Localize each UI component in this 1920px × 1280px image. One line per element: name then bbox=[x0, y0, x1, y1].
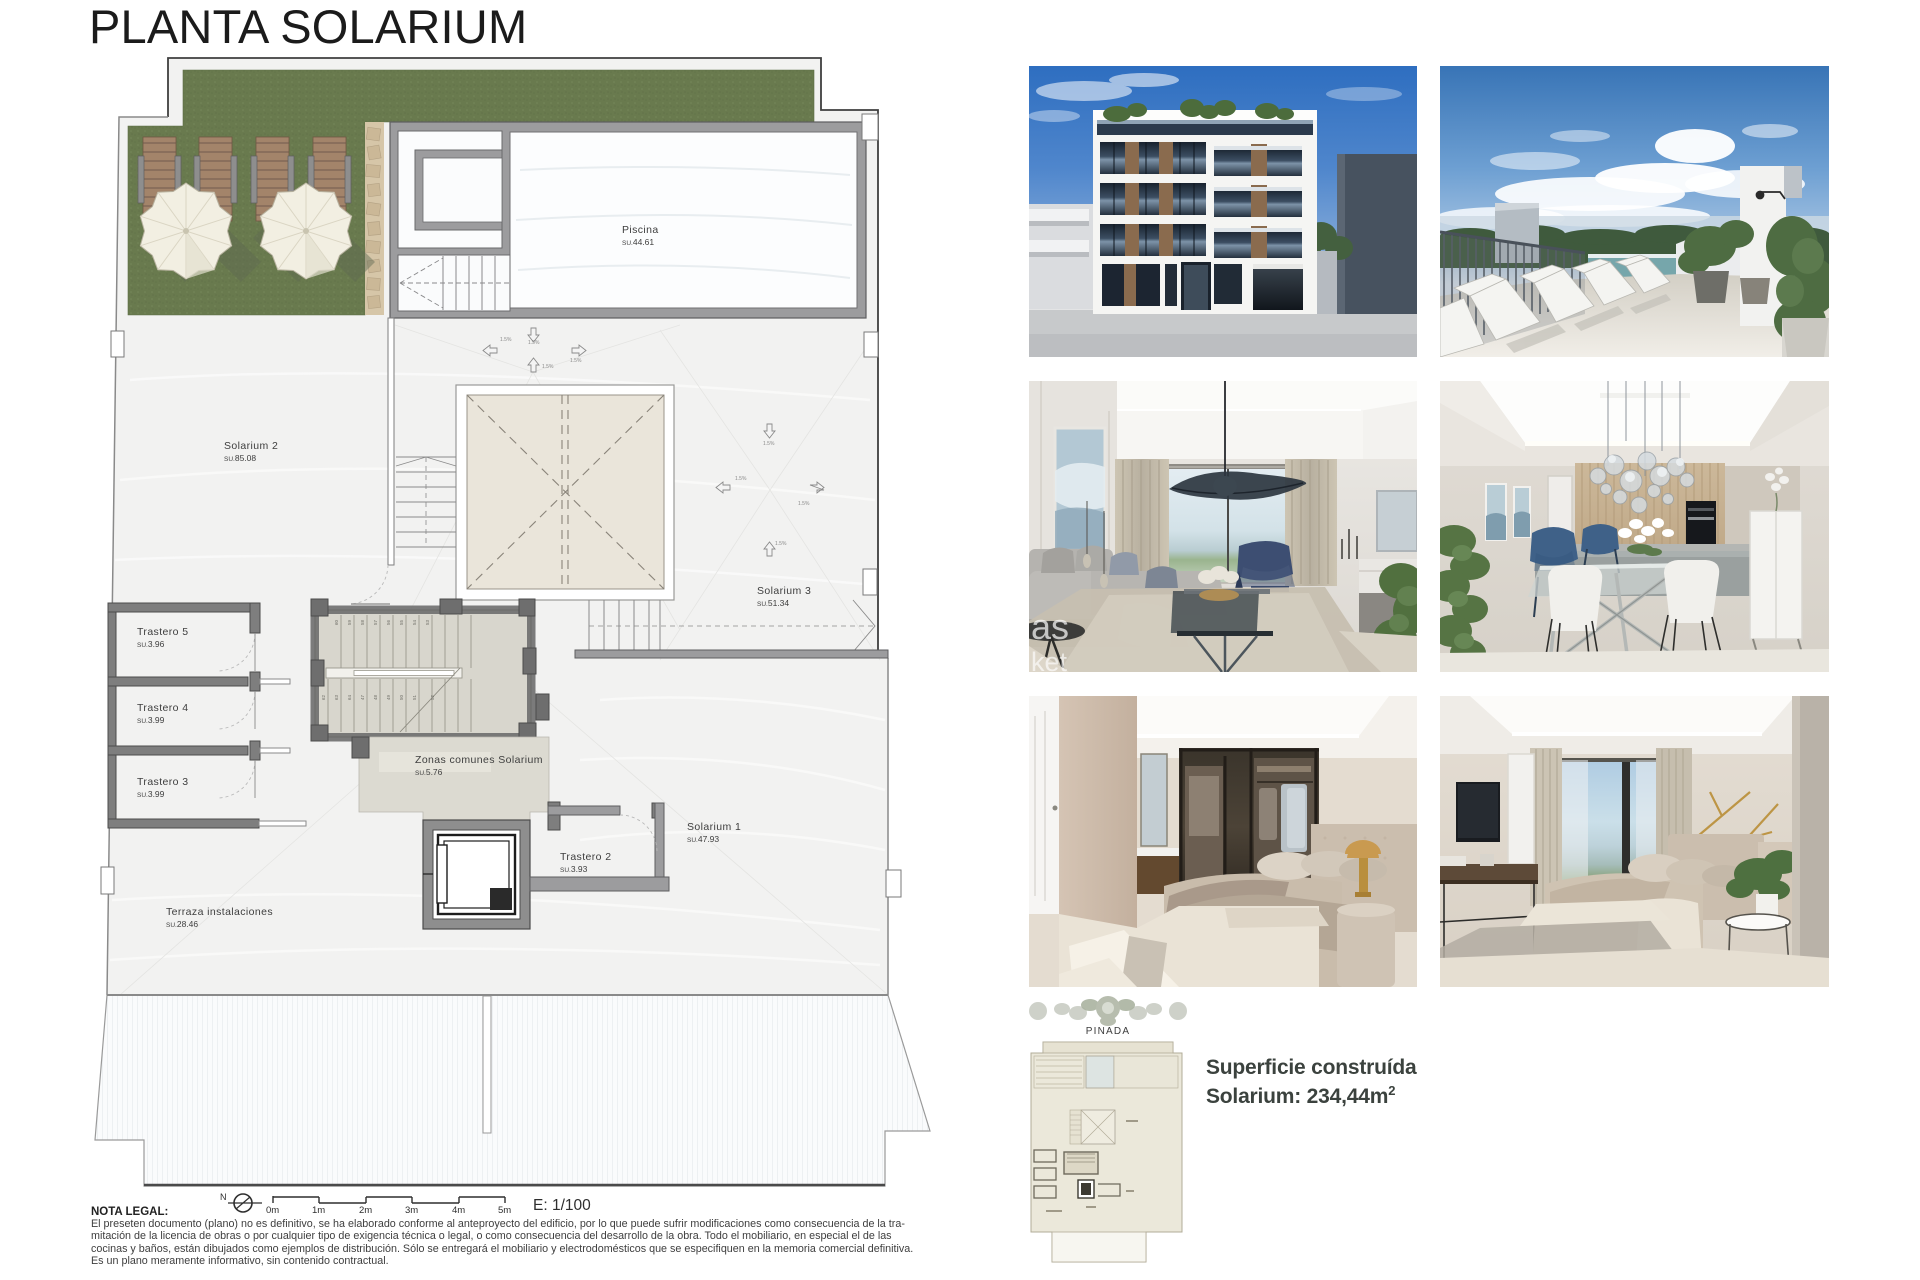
svg-text:4m: 4m bbox=[452, 1205, 465, 1216]
svg-text:E: 1/100: E: 1/100 bbox=[533, 1197, 591, 1214]
svg-text:53: 53 bbox=[425, 619, 430, 625]
svg-text:N: N bbox=[220, 1192, 227, 1202]
svg-text:60: 60 bbox=[334, 619, 339, 625]
svg-text:1.5%: 1.5% bbox=[735, 476, 747, 482]
svg-text:Trastero 3: Trastero 3 bbox=[137, 776, 188, 788]
svg-text:59: 59 bbox=[347, 619, 352, 625]
svg-text:ket: ket bbox=[1031, 647, 1068, 672]
svg-text:as: as bbox=[1031, 606, 1069, 647]
svg-text:3m: 3m bbox=[405, 1205, 418, 1216]
svg-text:51: 51 bbox=[412, 694, 417, 700]
svg-text:54: 54 bbox=[412, 619, 417, 625]
svg-text:48: 48 bbox=[373, 694, 378, 700]
svg-text:1.5%: 1.5% bbox=[542, 364, 554, 370]
svg-text:1.5%: 1.5% bbox=[763, 441, 775, 447]
svg-text:Solarium 3: Solarium 3 bbox=[757, 585, 811, 597]
svg-text:64: 64 bbox=[347, 694, 352, 700]
svg-text:1.5%: 1.5% bbox=[570, 358, 582, 364]
svg-text:50: 50 bbox=[399, 694, 404, 700]
svg-text:2m: 2m bbox=[359, 1205, 372, 1216]
svg-text:1.5%: 1.5% bbox=[798, 501, 810, 507]
svg-text:Trastero 2: Trastero 2 bbox=[560, 851, 611, 863]
svg-text:Piscina: Piscina bbox=[622, 224, 659, 236]
svg-text:63: 63 bbox=[334, 694, 339, 700]
svg-text:1m: 1m bbox=[312, 1205, 325, 1216]
svg-text:56: 56 bbox=[386, 619, 391, 625]
svg-text:55: 55 bbox=[399, 619, 404, 625]
svg-text:47: 47 bbox=[360, 694, 365, 700]
svg-text:Terraza instalaciones: Terraza instalaciones bbox=[166, 906, 273, 918]
svg-text:1.5%: 1.5% bbox=[775, 541, 787, 547]
svg-text:62: 62 bbox=[321, 694, 326, 700]
svg-text:1.5%: 1.5% bbox=[528, 340, 540, 346]
svg-text:Solarium 1: Solarium 1 bbox=[687, 821, 741, 833]
svg-text:Solarium 2: Solarium 2 bbox=[224, 440, 278, 452]
svg-text:Zonas comunes Solarium: Zonas comunes Solarium bbox=[415, 754, 543, 766]
svg-text:58: 58 bbox=[360, 619, 365, 625]
svg-text:57: 57 bbox=[373, 619, 378, 625]
svg-text:1.5%: 1.5% bbox=[500, 337, 512, 343]
svg-text:Trastero 4: Trastero 4 bbox=[137, 702, 188, 714]
svg-text:0m: 0m bbox=[266, 1205, 279, 1216]
svg-text:49: 49 bbox=[386, 694, 391, 700]
svg-text:52: 52 bbox=[430, 694, 435, 700]
svg-text:Trastero 5: Trastero 5 bbox=[137, 626, 188, 638]
svg-text:5m: 5m bbox=[498, 1205, 511, 1216]
